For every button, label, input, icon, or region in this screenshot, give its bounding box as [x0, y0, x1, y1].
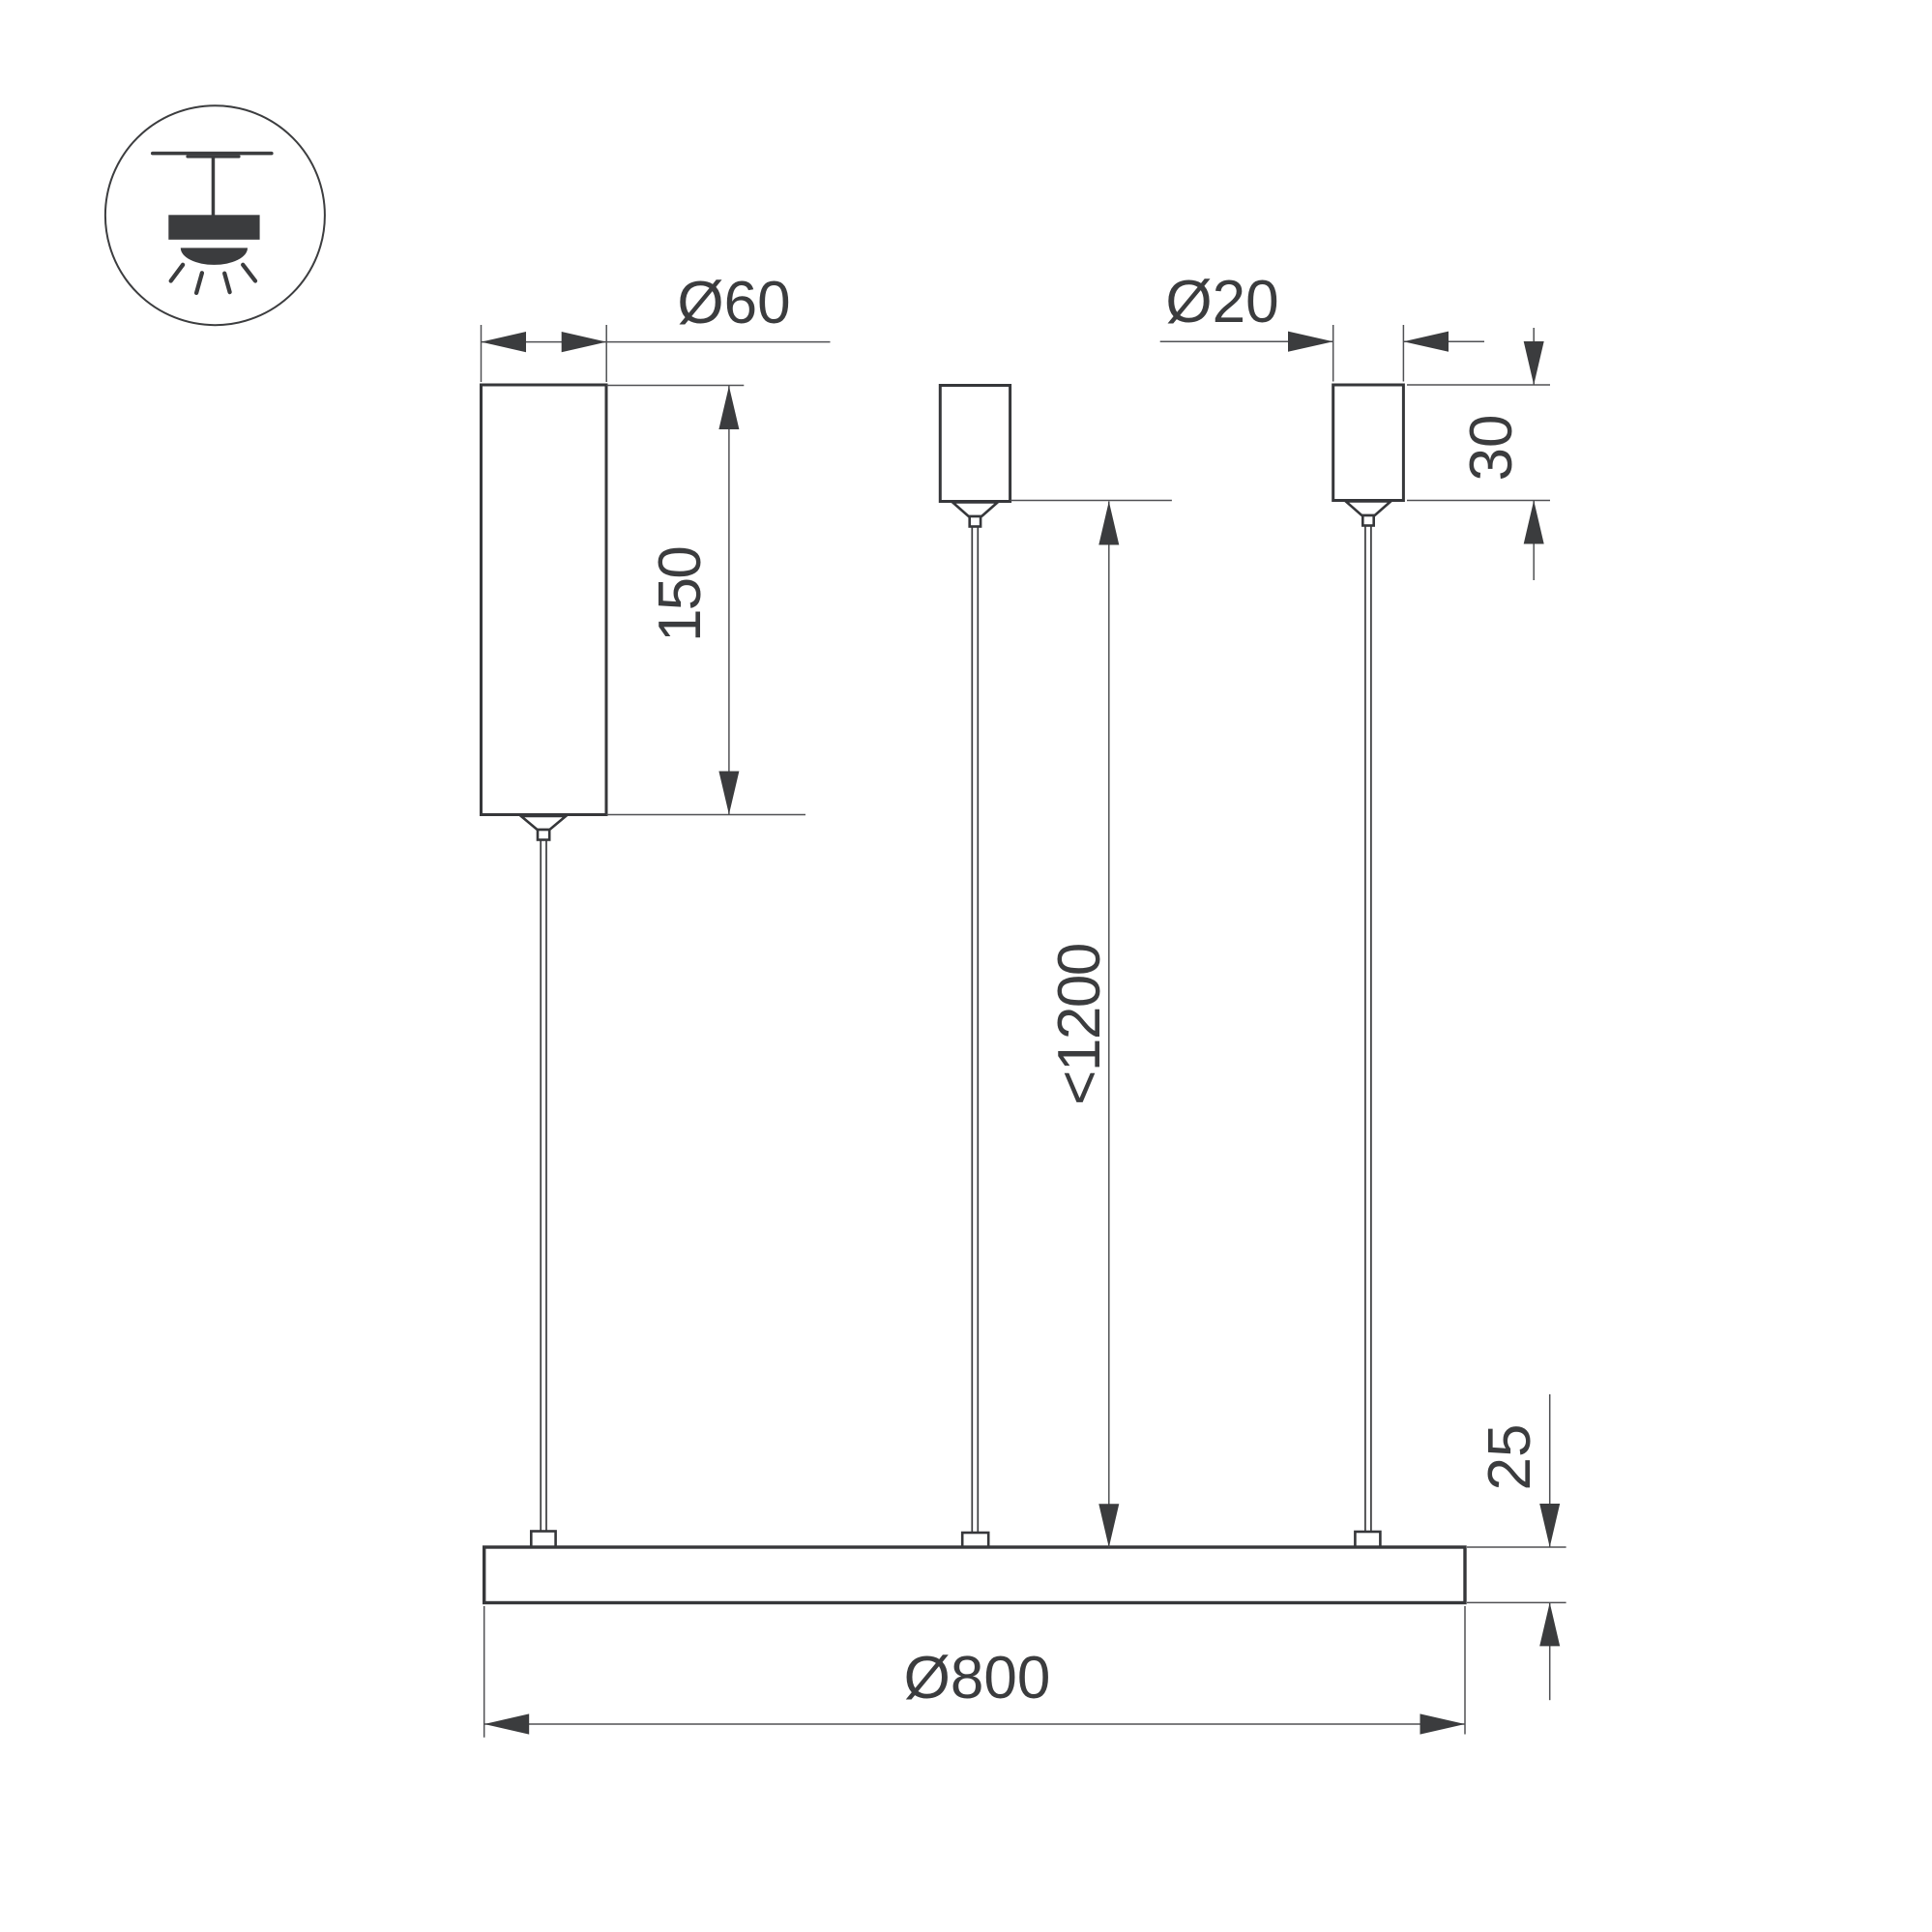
svg-text:25: 25 — [1477, 1424, 1543, 1491]
svg-text:Ø60: Ø60 — [677, 270, 790, 337]
svg-text:30: 30 — [1458, 415, 1525, 482]
svg-text:<1200: <1200 — [1046, 944, 1113, 1105]
svg-text:Ø20: Ø20 — [1165, 269, 1278, 336]
svg-text:Ø800: Ø800 — [904, 1645, 1051, 1712]
svg-text:150: 150 — [647, 547, 714, 642]
